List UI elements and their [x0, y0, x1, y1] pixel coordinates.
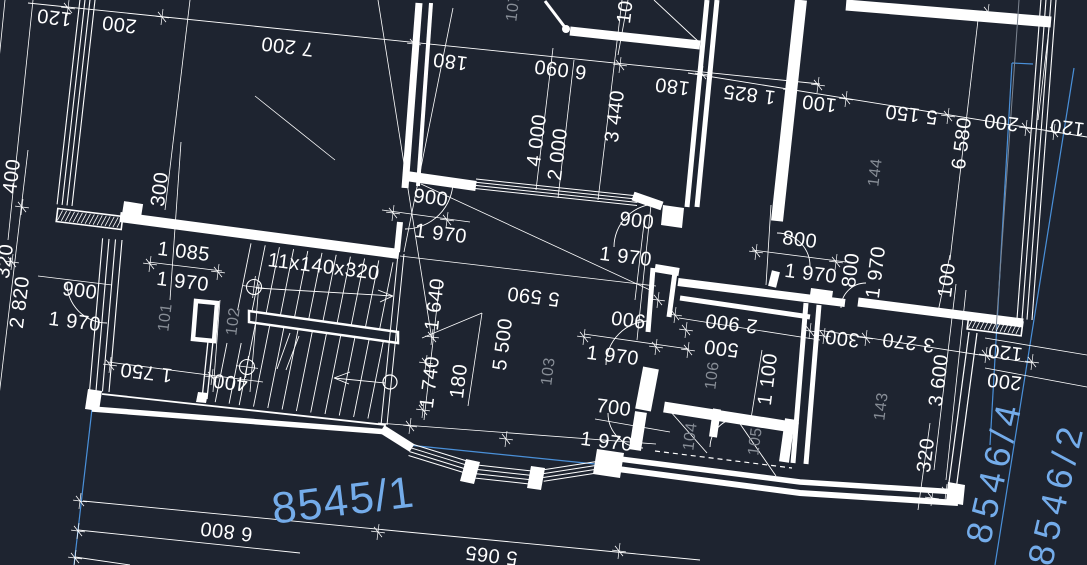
svg-text:100: 100: [934, 262, 960, 299]
svg-text:100: 100: [613, 0, 639, 25]
svg-text:400: 400: [0, 158, 25, 195]
svg-text:300: 300: [147, 171, 173, 208]
svg-text:105: 105: [745, 426, 765, 456]
svg-text:180: 180: [446, 363, 472, 400]
svg-text:900: 900: [412, 185, 449, 211]
svg-text:120: 120: [987, 339, 1024, 365]
svg-text:900: 900: [61, 278, 98, 304]
svg-text:144: 144: [865, 157, 885, 187]
svg-text:900: 900: [618, 208, 655, 234]
svg-text:103: 103: [538, 356, 558, 386]
svg-text:101: 101: [155, 302, 175, 332]
svg-text:200: 200: [101, 11, 138, 37]
svg-text:200: 200: [983, 109, 1020, 135]
svg-text:400: 400: [212, 369, 249, 395]
svg-text:180: 180: [654, 73, 691, 99]
svg-text:106: 106: [702, 360, 722, 390]
svg-text:800: 800: [781, 227, 818, 253]
svg-text:700: 700: [595, 395, 632, 421]
svg-text:120: 120: [36, 4, 73, 30]
svg-text:900: 900: [610, 306, 647, 332]
svg-text:800: 800: [838, 252, 864, 289]
svg-text:104: 104: [680, 421, 700, 451]
svg-text:320: 320: [913, 437, 939, 474]
svg-text:200: 200: [986, 368, 1023, 394]
svg-text:143: 143: [871, 391, 891, 421]
svg-text:300: 300: [824, 325, 861, 351]
svg-text:120: 120: [1049, 114, 1086, 140]
svg-text:102: 102: [223, 306, 243, 336]
svg-text:180: 180: [432, 48, 469, 74]
svg-text:100: 100: [801, 90, 838, 116]
svg-text:500: 500: [703, 335, 740, 361]
svg-text:107: 107: [503, 0, 523, 22]
